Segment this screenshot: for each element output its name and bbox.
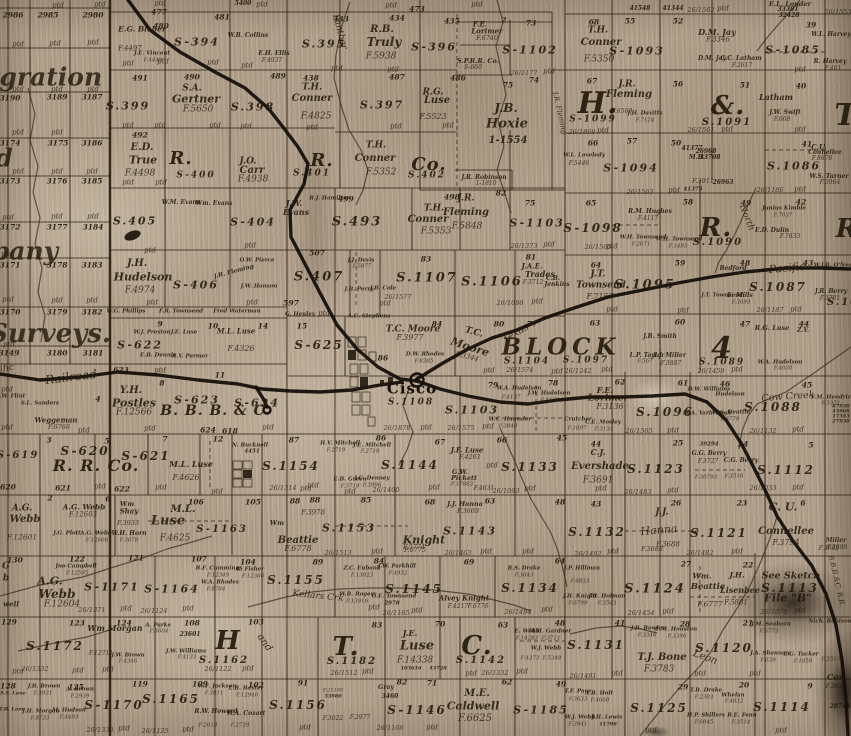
owner-name: J.H. Lewis — [592, 715, 622, 721]
parcel-number: 9 — [807, 682, 812, 690]
owner-name: Fred Waterman — [213, 309, 261, 315]
feature-label: B.B.B.&C. R.R. — [827, 554, 846, 607]
ptd-mark: ptd — [86, 169, 98, 176]
owner-name: F.R. Townsend — [159, 309, 203, 315]
ptd-mark: ptd — [611, 671, 623, 678]
ptd-mark: ptd — [154, 1, 166, 8]
ptd-mark: ptd — [426, 725, 438, 732]
survey-number: S-394 — [174, 37, 220, 48]
survey-number: S-621 — [121, 450, 170, 462]
margin-word: igration — [0, 65, 102, 90]
parcel-number: 65 — [586, 199, 596, 207]
parcel-number: 62 — [502, 678, 512, 686]
parcel-number: 40 — [796, 82, 806, 90]
ptd-mark: ptd — [420, 425, 432, 432]
owner-name: T.H. — [588, 27, 608, 36]
ptd-mark: ptd — [318, 311, 330, 318]
parcel-number: 5 — [808, 441, 813, 449]
owner-name: C.G. Berry — [724, 458, 759, 464]
file-number: F.13023 — [351, 573, 373, 579]
survey-number: S.1097 — [563, 357, 609, 366]
ptd-mark: ptd — [102, 667, 114, 674]
file-number: F.12366 — [242, 574, 264, 580]
file-number: F.3964 — [820, 180, 840, 186]
parcel-number: 3173 — [0, 177, 20, 185]
parcel-number: 491 — [132, 74, 148, 82]
ptd-mark: ptd — [246, 300, 258, 307]
parcel-number: 624 — [200, 426, 216, 434]
parcel-number: 41344 — [663, 6, 684, 12]
survey-number: S.1095 — [614, 279, 676, 292]
parcel-number: 2985 — [38, 11, 59, 19]
file-number: F.7157 — [586, 293, 613, 301]
feature-label: Pacific — [768, 261, 805, 275]
ptd-mark: ptd — [368, 605, 380, 612]
file-number: F.6779 — [721, 417, 740, 423]
ptd-mark: ptd — [94, 2, 106, 9]
ptd-mark: ptd — [387, 67, 399, 74]
parcel-number: 78 — [548, 379, 558, 387]
owner-name: J.R. Holman — [589, 594, 626, 600]
margin-word: Surveys. — [0, 321, 111, 347]
ptd-mark: ptd — [122, 180, 134, 187]
ptd-mark: ptd — [794, 67, 806, 74]
parcel-number: 622 — [114, 485, 130, 493]
certificate-number: 26/1492 — [574, 551, 601, 558]
survey-number: S.1134 — [501, 582, 559, 594]
map-labels: 2986298529804774804815400473433434435273… — [0, 0, 851, 736]
file-number: F.3978 — [301, 510, 325, 517]
owner-name: T.B. Lane — [0, 708, 25, 713]
parcel-number: 3149 — [0, 349, 19, 357]
ptd-mark: ptd — [94, 484, 106, 491]
certificate-number: 26/1483 — [624, 489, 651, 496]
certificate-number: 26/1373 — [510, 243, 537, 250]
parcel-number: 3177 — [47, 223, 68, 231]
ptd-mark: ptd — [1, 252, 13, 259]
owner-name: A.G. — [37, 576, 62, 587]
certificate-number: 26/1574 — [506, 367, 533, 374]
parcel-number: 2986 — [3, 11, 24, 19]
file-number: F.4932 — [389, 571, 408, 577]
file-number: F.4326 — [227, 345, 254, 353]
owner-name: H.P. Shillers — [687, 713, 725, 719]
owner-name: J.W. Hudelson — [528, 391, 571, 397]
owner-name: L.B. Baxter — [229, 686, 264, 692]
ptd-mark: ptd — [154, 368, 166, 375]
owner-name: G — [2, 563, 10, 572]
parcel-number: 91 — [298, 679, 308, 687]
certificate-number: 26/1187 — [756, 307, 783, 314]
survey-number: S.407 — [294, 271, 345, 284]
ptd-mark: ptd — [717, 6, 729, 13]
ptd-mark: ptd — [155, 485, 167, 492]
parcel-number: 45 — [802, 381, 812, 389]
owner-name: W.J. Webb — [565, 715, 595, 721]
file-number: F.3712 — [523, 280, 543, 286]
owner-name: A.J. Miller — [652, 353, 686, 359]
ptd-mark: ptd — [144, 248, 156, 255]
parcel-number: 105 — [245, 498, 261, 506]
parcel-number: 3172 — [0, 223, 20, 231]
file-number: F.3516 — [725, 474, 744, 480]
owner-name: D.W. Rhodes — [406, 352, 444, 358]
owner-name: W.H. Horn — [112, 531, 147, 537]
ptd-mark: ptd — [262, 425, 274, 432]
parcel-number: 434 — [389, 14, 405, 22]
ptd-mark: ptd — [667, 488, 679, 495]
owner-name: Luse — [424, 96, 450, 106]
ptd-mark: ptd — [794, 187, 806, 194]
owner-name: Wm Morgan — [87, 624, 142, 632]
parcel-number: 88 — [310, 496, 320, 504]
survey-map: 2986298529804774804815400473433434435273… — [0, 0, 851, 736]
owner-name: Z.V. — [797, 328, 809, 334]
file-number: F.3933 — [117, 520, 139, 527]
parcel-number: 75 — [525, 199, 535, 207]
survey-number: S.1108 — [388, 399, 434, 408]
parcel-number: 3460 — [382, 694, 399, 700]
file-number: F.2977 — [350, 715, 370, 721]
owner-name: G. Henley — [285, 312, 315, 318]
parcel-number: 67 — [587, 77, 597, 85]
owner-name: J.P. Hillman — [564, 566, 600, 572]
file-number: F.4137 — [502, 395, 521, 401]
file-number: F.17883 — [451, 482, 473, 488]
file-number: F.4937 — [262, 58, 282, 64]
ptd-mark: ptd — [51, 130, 63, 137]
file-number: F.6625 — [458, 714, 492, 724]
parcel-number: 8 — [159, 379, 164, 387]
file-number: F.6766 — [48, 424, 70, 431]
owner-name: J.G. Plott — [53, 531, 80, 537]
file-number: F.2617 — [732, 63, 752, 69]
owner-name: M. Hudson — [52, 708, 86, 714]
owner-name: E.D. — [131, 143, 154, 153]
parcel-number: 623 — [113, 366, 129, 374]
owner-name: C.J. — [591, 448, 606, 456]
parcel-number: 3 — [46, 436, 51, 444]
parcel-number: 489 — [270, 72, 286, 80]
parcel-number: 9 — [157, 320, 162, 328]
owner-name: C.E. Mosley — [585, 420, 621, 426]
file-number: F.6045 — [695, 720, 714, 726]
file-number: F.30793 — [695, 475, 717, 481]
owner-name: W.A. Rhodes — [201, 580, 239, 586]
file-number: F.2618 — [199, 723, 218, 729]
certificate-number: 26/1338 — [86, 727, 113, 734]
file-number: F.4938 — [238, 176, 269, 185]
ptd-mark: ptd — [209, 123, 221, 130]
survey-number: S.1155 — [267, 574, 325, 586]
parcel-number: 43728 — [429, 667, 446, 672]
survey-number: S.1107 — [396, 272, 458, 285]
ptd-mark: ptd — [694, 671, 706, 678]
certificate-number: 26/1314 — [269, 485, 296, 492]
parcel-number: 6 — [105, 495, 110, 503]
certificate-number: 26/1562 — [687, 7, 714, 14]
town-label: Cisco — [387, 382, 437, 397]
parcel-number: 32428 — [779, 13, 800, 19]
certificate-number: 26/1878 — [383, 425, 410, 432]
certificate-number: 26/1561 — [687, 127, 714, 134]
file-number: F.3887 — [661, 361, 681, 367]
ptd-mark: ptd — [731, 367, 743, 374]
certificate-number: 26/1165 — [382, 610, 409, 617]
owner-name: T.C. — [464, 326, 485, 340]
owner-name: J.W. — [286, 199, 302, 207]
survey-number: S-1094 — [603, 163, 659, 174]
file-number: F.4261 — [459, 454, 481, 461]
owner-name: b — [3, 575, 9, 584]
parcel-number: 26 — [671, 499, 681, 507]
parcel-number: 3187 — [82, 93, 103, 101]
owner-name: Hudelson — [715, 392, 744, 398]
ptd-mark: ptd — [51, 214, 63, 221]
parcel-number: 6 — [800, 499, 805, 507]
file-number: F.12349 — [207, 573, 229, 579]
file-number: 1-1810 — [475, 181, 496, 187]
owner-name: Alvey Knight — [439, 595, 489, 602]
owner-name: Y.H. — [120, 386, 142, 396]
parcel-number: 81 — [526, 253, 536, 261]
file-number: F.4832 — [725, 699, 744, 705]
survey-number: S.1154 — [262, 460, 320, 472]
file-number: F.3136 — [596, 403, 623, 411]
ptd-mark: ptd — [411, 608, 423, 615]
parcel-number: 24 — [738, 440, 748, 448]
ptd-mark: ptd — [749, 671, 761, 678]
survey-number: S.1125 — [630, 702, 688, 714]
parcel-number: 55 — [625, 17, 635, 25]
file-number: F.4133 — [178, 655, 197, 661]
block-letter: T — [834, 101, 851, 131]
certificate-number: 26/1098 — [496, 300, 523, 307]
file-number: F.3783 — [644, 666, 675, 675]
certificate-number: 26/1553 — [824, 9, 851, 16]
owner-name: W.A. Cozart — [227, 711, 266, 717]
file-number: F.5650 — [183, 106, 214, 115]
owner-name: J.E. Luse — [171, 330, 198, 336]
paper-stain — [828, 660, 851, 722]
owner-name: W.J. Preston — [133, 330, 170, 336]
ptd-mark: ptd — [299, 725, 311, 732]
parcel-number: 64 — [591, 261, 601, 269]
survey-number: S.1090 — [693, 238, 743, 248]
owner-name: A.G. — [12, 505, 33, 514]
file-number: F.4030 — [774, 366, 793, 372]
ptd-mark: ptd — [12, 669, 24, 676]
owner-name: Gertner — [172, 94, 220, 105]
certificate-number: 26/1575 — [447, 425, 474, 432]
file-number: F.8678 — [812, 156, 832, 162]
file-number: F.3643 — [515, 573, 534, 579]
parcel-number: 15 — [297, 322, 307, 330]
file-number: F.5523 — [419, 113, 446, 121]
survey-number: S.1086 — [767, 161, 821, 172]
ptd-mark: ptd — [531, 299, 543, 306]
ptd-mark: ptd — [597, 128, 609, 135]
parcel-number: 27 — [681, 560, 691, 568]
parcel-number: 74 — [529, 76, 539, 84]
parcel-number: 3183 — [82, 261, 103, 269]
certificate-number: 26/1093 — [492, 488, 519, 495]
certificate-number: 26/1459 — [697, 368, 724, 375]
survey-number: S.1121 — [690, 527, 748, 539]
parcel-number: 88 — [290, 497, 300, 505]
parcel-number: 22 — [743, 561, 753, 569]
parcel-number: 3176 — [47, 177, 68, 185]
owner-name: T.B. Drake — [690, 688, 722, 694]
ptd-mark: ptd — [155, 180, 167, 187]
feature-label: J.R. Fleming — [551, 91, 567, 135]
parcel-number: 26963 — [713, 180, 734, 186]
certificate-number: 26/1494 — [504, 609, 531, 616]
survey-number: S.1106 — [461, 276, 523, 289]
parcel-number: 618 — [222, 427, 238, 435]
owner-name: S.L. Sanders — [21, 401, 59, 407]
feature-label: Kellars Crk — [292, 590, 344, 604]
ptd-mark: ptd — [522, 549, 534, 556]
parcel-number: 89 — [313, 558, 323, 566]
ptd-mark: ptd — [362, 669, 374, 676]
feature-label: and — [255, 632, 274, 653]
parcel-number: 121 — [128, 554, 144, 562]
file-number: F.6833 — [571, 579, 590, 585]
survey-number: S-396 — [411, 42, 457, 53]
ptd-mark: ptd — [49, 41, 61, 48]
parcel-number: 3185 — [82, 177, 103, 185]
file-number: F.12595 — [66, 571, 88, 577]
parcel-number: 44 — [591, 440, 601, 448]
certificate-number: 26/1869 — [568, 129, 595, 136]
ptd-mark: ptd — [790, 307, 802, 314]
ptd-mark: ptd — [52, 3, 64, 10]
owner-name: Conner — [292, 94, 333, 104]
survey-number: S.1143 — [443, 526, 497, 537]
parcel-number: 67 — [435, 438, 445, 446]
parcel-number: 490 — [184, 73, 200, 81]
owner-name: J.T. — [590, 271, 605, 280]
certificate-number: 26/1332 — [481, 670, 508, 677]
ptd-mark: ptd — [3, 342, 15, 349]
file-number: F.12604 — [44, 601, 80, 610]
owner-name: Luse — [400, 640, 434, 653]
ptd-mark: ptd — [601, 367, 613, 374]
owner-name: Webb — [10, 515, 41, 525]
file-number: F.4498 — [125, 170, 156, 179]
owner-name: R.S. Drake — [508, 566, 541, 572]
file-number: F.5877 — [353, 264, 372, 270]
file-number: F.4493 — [60, 715, 79, 721]
survey-number: S-1099 — [569, 116, 617, 125]
parcel-number: 41 — [615, 619, 625, 627]
file-number: F.12711 — [89, 651, 113, 657]
parcel-number: 3175 — [48, 139, 69, 147]
file-number: F.4631 — [474, 486, 494, 492]
survey-number: S.1131 — [567, 639, 625, 651]
file-number: F.1897 — [568, 426, 587, 432]
parcel-number: 83 — [372, 621, 382, 629]
parcel-number: 82 — [496, 189, 506, 197]
survey-number: S.398 — [231, 102, 275, 113]
ptd-mark: ptd — [668, 188, 680, 195]
file-number: F.6773 — [760, 629, 779, 635]
survey-number: S.1123 — [627, 463, 685, 475]
parcel-number: 486 — [450, 74, 466, 82]
owner-name: J.R. Brown — [28, 684, 60, 690]
owner-name: Wm. Evans — [196, 201, 233, 207]
parcel-number: 3179 — [47, 308, 68, 316]
parcel-number: 473 — [409, 5, 425, 13]
survey-number: S-406 — [173, 280, 219, 291]
parcel-number: 438 — [303, 74, 319, 82]
parcel-number: 2 — [47, 494, 52, 502]
ptd-mark: ptd — [12, 169, 24, 176]
file-number: F.1050 — [794, 659, 813, 665]
certificate-number: 26/1491 — [569, 673, 596, 680]
parcel-number: 129 — [1, 618, 17, 626]
file-number: F.3849 — [499, 424, 518, 430]
parcel-number: 58 — [683, 198, 693, 206]
file-number: F.5348 — [543, 656, 562, 662]
parcel-number: 4 — [95, 395, 100, 403]
parcel-number: 69 — [464, 558, 474, 566]
file-number: F.4217 — [448, 604, 468, 610]
ptd-mark: ptd — [792, 427, 804, 434]
parcel-number: 4451 — [244, 449, 259, 455]
file-number: F.4346 — [119, 659, 138, 665]
block-letter: B. B. B. & C — [160, 404, 265, 418]
ptd-mark: ptd — [12, 42, 24, 49]
ptd-mark: ptd — [480, 549, 492, 556]
owner-name: Wm. Beattie — [712, 410, 750, 416]
parcel-number: 48 — [555, 498, 565, 506]
parcel-number: 3190 — [0, 94, 20, 102]
ptd-mark: ptd — [12, 130, 24, 137]
block-letter: R. — [310, 152, 333, 170]
ptd-mark: ptd — [256, 2, 268, 9]
file-number: F.2303 — [695, 695, 714, 701]
ptd-mark: ptd — [146, 300, 158, 307]
parcel-number: 507 — [309, 249, 325, 257]
owner-name: E. Mills — [727, 293, 753, 299]
file-number: F.12940 — [236, 693, 258, 699]
file-number: F.5350 — [584, 56, 615, 65]
ptd-mark: ptd — [543, 69, 555, 76]
survey-number: S.1156 — [269, 699, 327, 711]
owner-name: Jno Campbell — [55, 564, 96, 570]
survey-number: S-1146 — [387, 704, 446, 716]
certificate-number: 26/1122 — [204, 666, 231, 673]
certificate-number: 26/1512 — [330, 670, 357, 677]
survey-number: S-1170 — [84, 699, 143, 711]
parcel-number: 2 — [501, 16, 506, 24]
owner-name: Fleming — [606, 90, 652, 100]
owner-name: W.L. Loveledy — [563, 153, 605, 159]
parcel-number: 48 — [555, 619, 565, 627]
parcel-number: 41548 — [630, 6, 651, 12]
parcel-number: 60 — [675, 318, 685, 326]
file-number: S-860 — [464, 65, 482, 71]
ptd-mark: ptd — [78, 428, 90, 435]
file-number: F.6776 — [468, 604, 488, 610]
file-number: F.668 — [774, 117, 791, 123]
survey-number: S-625 — [294, 339, 343, 351]
certificate-number: 26/1166 — [376, 725, 403, 732]
paper-stain — [763, 580, 825, 624]
file-number: F.2718 — [361, 449, 380, 455]
